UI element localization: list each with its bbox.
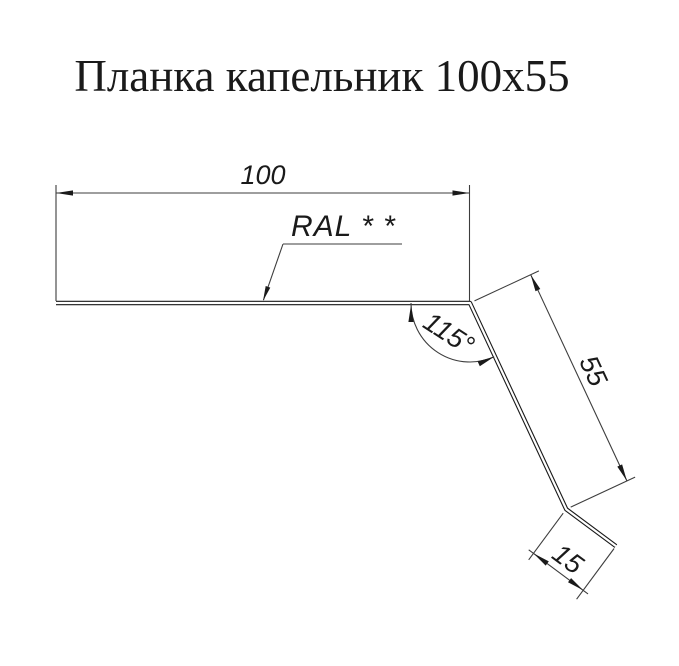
- flashing-profile: [56, 303, 616, 546]
- lip-dimension-label: 15: [547, 538, 590, 581]
- drawing-page: Планка капельник 100x55 100 55: [0, 0, 679, 666]
- width-arrowhead-right: [453, 190, 470, 195]
- width-dimension-label: 100: [240, 160, 285, 190]
- width-dimension: 100: [56, 160, 470, 301]
- side-extension-line-bottom: [571, 477, 635, 507]
- drawing-title: Планка капельник 100x55: [74, 51, 569, 101]
- side-extension-line-top: [475, 271, 539, 301]
- side-dimension: 55: [475, 271, 636, 507]
- profile-outline: [56, 303, 616, 546]
- lip-dimension: 15: [529, 513, 614, 599]
- side-dimension-label: 55: [573, 351, 613, 392]
- ral-label: RAL * *: [291, 210, 396, 243]
- width-arrowhead-left: [56, 190, 73, 195]
- angle-arrowhead-top: [408, 305, 413, 322]
- side-arrowhead-top: [531, 275, 541, 292]
- side-arrowhead-bottom: [617, 464, 627, 481]
- profile-core: [56, 303, 616, 546]
- ral-leader-arrowhead: [263, 286, 270, 301]
- angle-dimension: 115°: [408, 303, 494, 366]
- ral-callout: RAL * *: [263, 210, 402, 301]
- technical-drawing-canvas: Планка капельник 100x55 100 55: [0, 0, 679, 666]
- lip-arrowhead-right: [568, 578, 583, 590]
- angle-arrowhead-bottom: [478, 357, 495, 366]
- angle-dimension-label: 115°: [418, 306, 480, 361]
- lip-arrowhead-left: [534, 553, 549, 565]
